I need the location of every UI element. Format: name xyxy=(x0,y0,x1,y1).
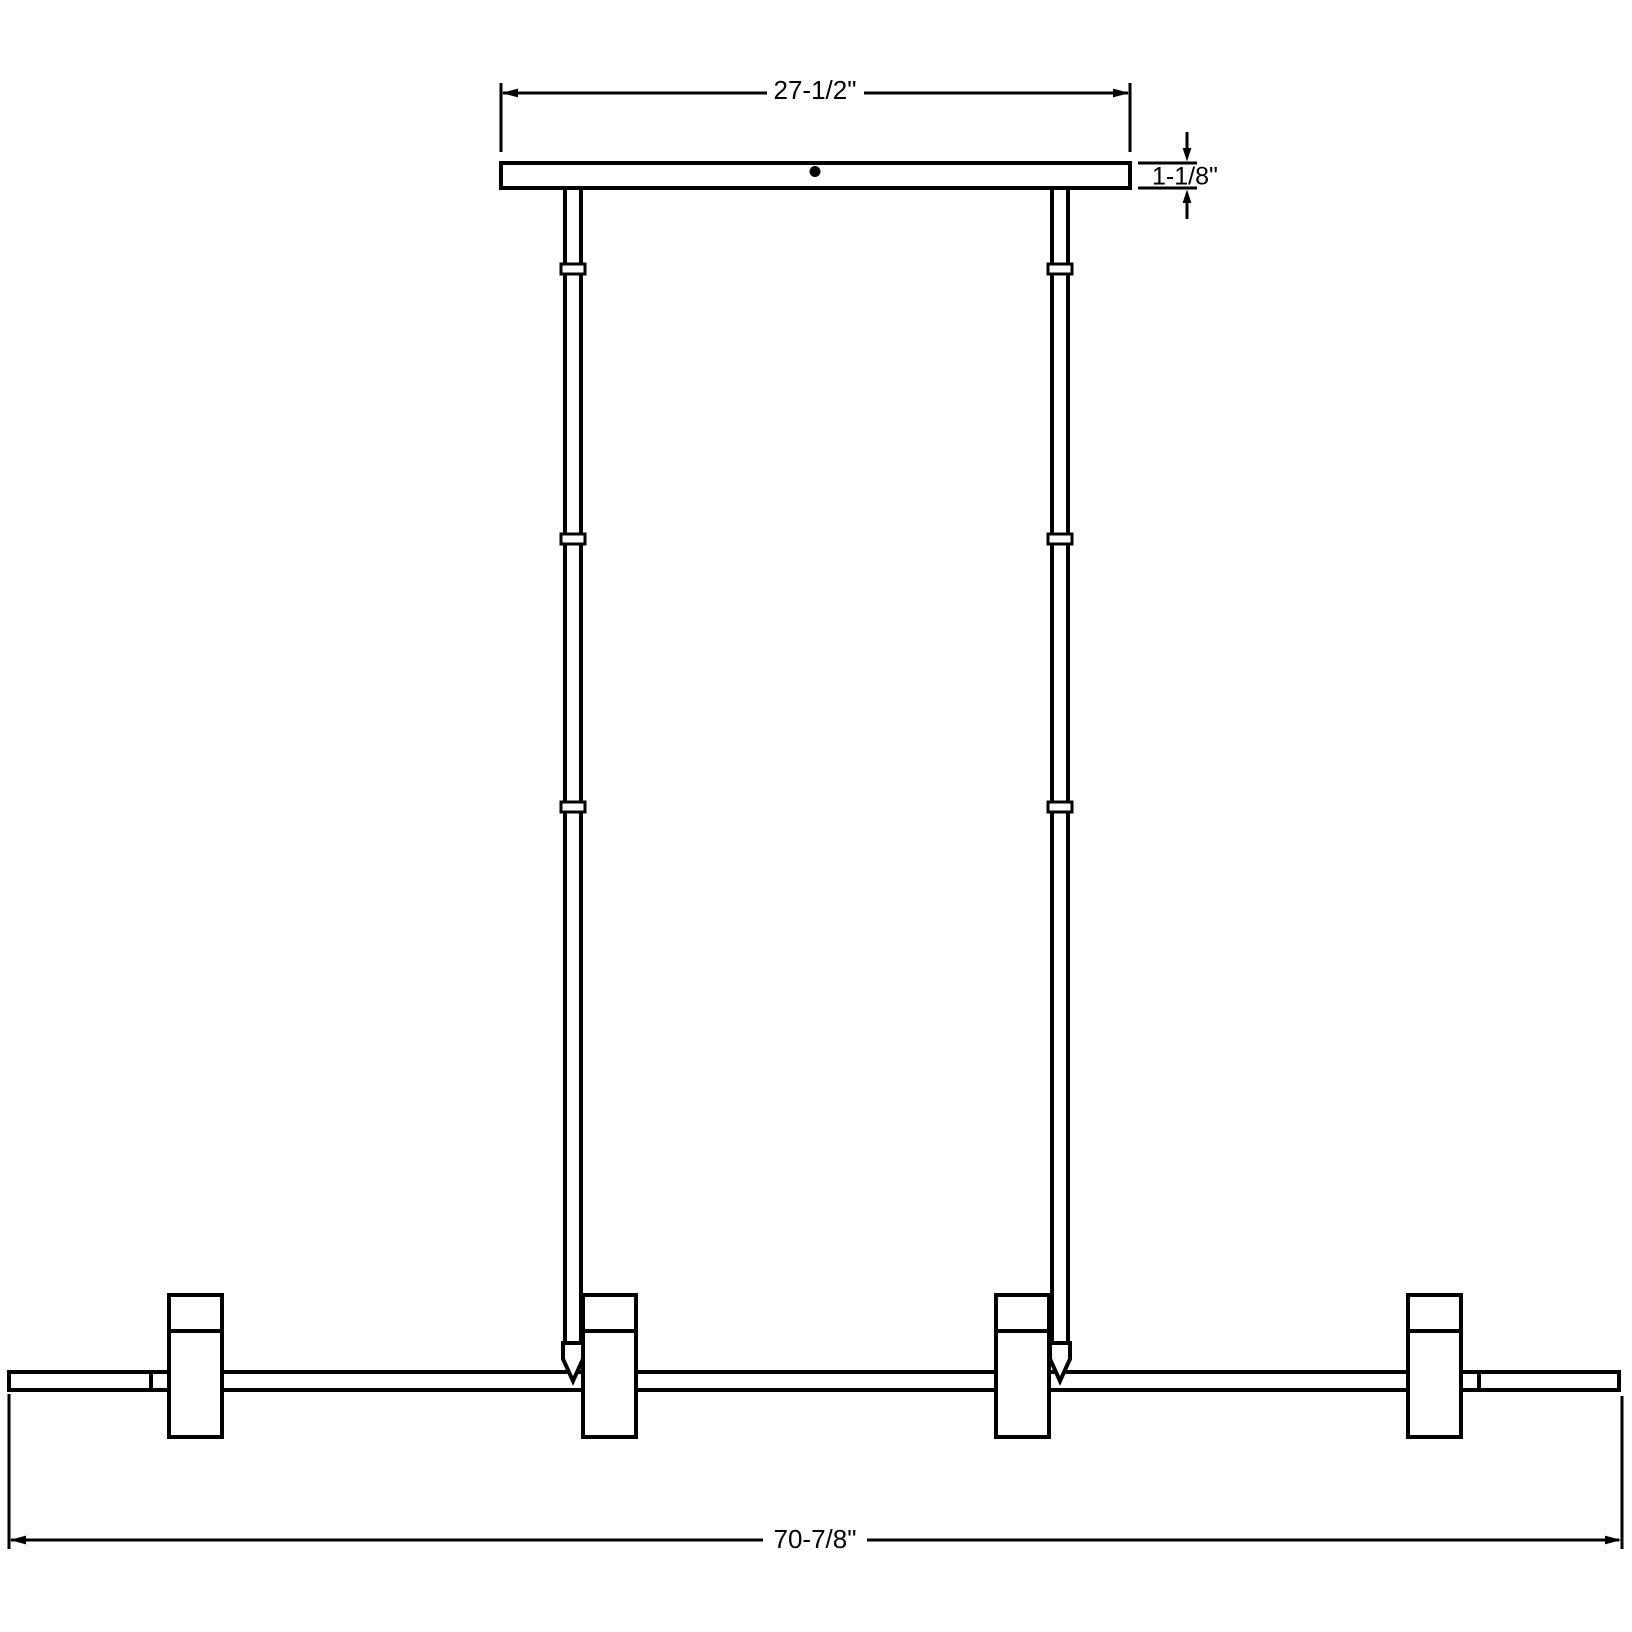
arrowhead-down-icon xyxy=(1183,148,1192,162)
arrowhead-left-icon xyxy=(502,89,519,98)
arrowhead-right-icon xyxy=(1113,89,1130,98)
ceiling-canopy xyxy=(501,163,1130,188)
technical-drawing: 27-1/2" 1-1/8" 70-7/8" xyxy=(0,0,1632,1632)
lamp-head-1 xyxy=(169,1295,222,1437)
arrowhead-right-icon xyxy=(1605,1536,1622,1545)
right-stem xyxy=(1048,190,1072,1381)
stem-coupler xyxy=(561,534,585,544)
canopy-thickness-dimension: 1-1/8" xyxy=(1138,132,1218,219)
stem-coupler xyxy=(1048,534,1072,544)
canopy-mount-dot xyxy=(810,166,821,177)
canopy-thickness-label: 1-1/8" xyxy=(1152,163,1218,191)
stem-coupler xyxy=(1048,802,1072,812)
bar-length-label: 70-7/8" xyxy=(774,1524,857,1554)
drawing-canvas: 27-1/2" 1-1/8" 70-7/8" xyxy=(0,0,1632,1632)
lamp-head-body xyxy=(583,1295,636,1437)
lamp-head-body xyxy=(1408,1295,1461,1437)
lamp-head-body xyxy=(169,1295,222,1437)
bar-length-dimension: 70-7/8" xyxy=(9,1394,1622,1554)
arrowhead-left-icon xyxy=(10,1536,27,1545)
stem-coupler xyxy=(561,264,585,274)
stem-coupler xyxy=(561,802,585,812)
canopy-width-label: 27-1/2" xyxy=(774,75,857,105)
lamp-head-3 xyxy=(996,1295,1049,1437)
lamp-head-2 xyxy=(583,1295,636,1437)
lamp-head-4 xyxy=(1408,1295,1461,1437)
canopy-width-dimension: 27-1/2" xyxy=(501,75,1130,152)
stem-coupler xyxy=(1048,264,1072,274)
fixture-bar xyxy=(9,1372,1619,1390)
arrowhead-up-icon xyxy=(1183,190,1192,204)
bar-outline xyxy=(9,1372,1619,1390)
left-stem xyxy=(561,190,585,1381)
lamp-head-body xyxy=(996,1295,1049,1437)
